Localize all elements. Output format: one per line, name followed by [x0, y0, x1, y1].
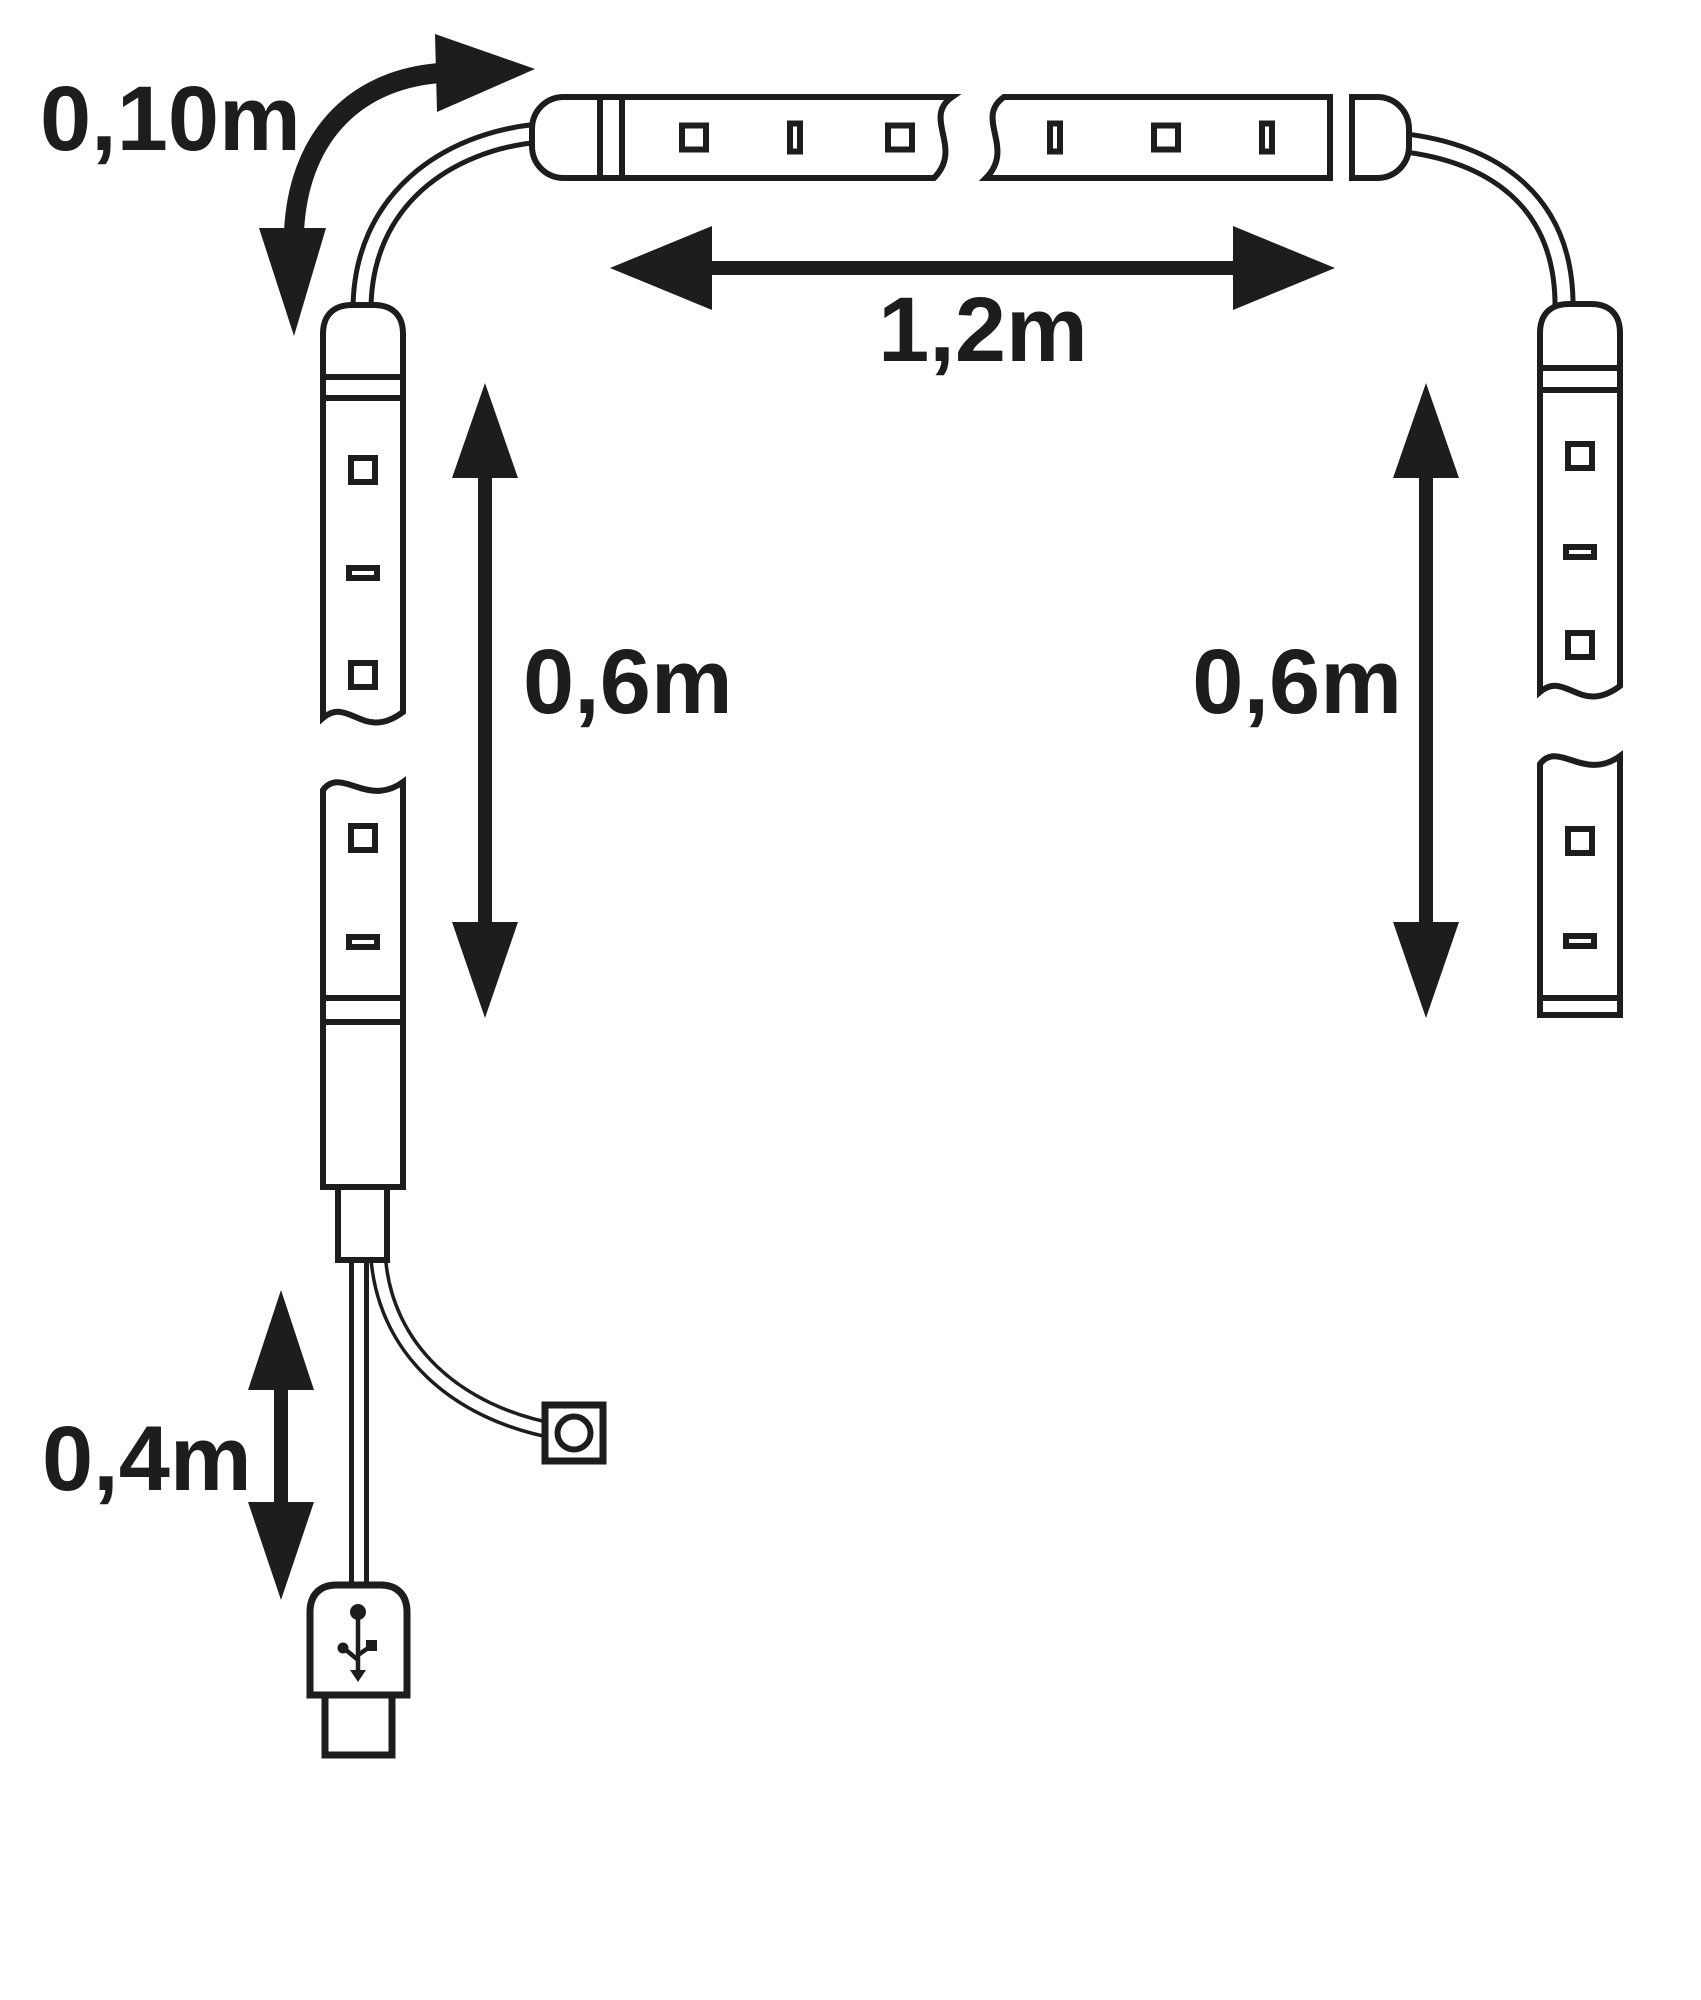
resistor-mark: [1262, 124, 1272, 152]
resistor-mark: [349, 568, 377, 578]
left-connector-cable-core: [362, 133, 540, 310]
resistor-mark: [1050, 124, 1060, 152]
resistor-mark: [1566, 936, 1594, 946]
label-horizontal-strip-length: 1,2m: [878, 279, 1088, 381]
arrow-left-0-6m-head-up: [452, 383, 518, 478]
led-square: [351, 826, 375, 850]
led-square: [1568, 829, 1592, 853]
right-strip-lower-segment: [1540, 756, 1620, 1015]
led-square: [351, 458, 375, 482]
usb-plug-metal-shell: [325, 1695, 392, 1755]
horizontal-led-strip: [532, 97, 1409, 178]
usb-plug: [310, 1585, 407, 1755]
arrow-1-2m-head-left: [610, 226, 712, 310]
resistor-mark: [1566, 547, 1594, 557]
led-square: [1568, 633, 1592, 657]
inline-switch: [545, 1405, 603, 1461]
left-strip-upper-segment: [323, 305, 403, 723]
switch-cable-core: [378, 1255, 560, 1432]
led-square: [888, 126, 912, 150]
horizontal-strip-right-cap: [1352, 97, 1409, 178]
strip-end-plug: [338, 1187, 387, 1260]
led-square: [351, 663, 375, 687]
led-square: [1568, 444, 1592, 468]
usb-icon-square-tip: [366, 1640, 377, 1651]
arrow-1-2m-head-right: [1233, 226, 1335, 310]
led-square: [682, 126, 706, 150]
led-strip-dimension-diagram: 0,10m 1,2m 0,6m 0,6m 0,4m: [0, 0, 1701, 2000]
right-led-strip: [1540, 304, 1620, 1015]
arrow-right-0-6m-head-down: [1393, 922, 1459, 1018]
curved-arrow-head-right: [435, 34, 535, 112]
diagram-svg: 0,10m 1,2m 0,6m 0,6m 0,4m: [0, 0, 1701, 2000]
label-usb-cable-length: 0,4m: [42, 1408, 252, 1510]
right-connector-cable-core: [1398, 142, 1564, 310]
label-connector-cable-length: 0,10m: [40, 68, 301, 170]
usb-icon-circle-tip: [338, 1643, 349, 1654]
horizontal-strip-left-cap: [532, 97, 622, 178]
curved-arrow-head-down: [259, 228, 326, 336]
dimension-labels: 0,10m 1,2m 0,6m 0,6m 0,4m: [40, 68, 1402, 1510]
resistor-mark: [349, 937, 377, 947]
label-left-strip-length: 0,6m: [523, 631, 733, 733]
left-led-strip: [323, 305, 403, 1260]
arrow-right-0-6m-head-up: [1393, 383, 1459, 478]
curved-arrow-shaft: [294, 73, 440, 232]
switch-circle-icon: [558, 1417, 591, 1450]
led-square: [1154, 126, 1178, 150]
resistor-mark: [790, 124, 800, 152]
label-right-strip-length: 0,6m: [1192, 631, 1402, 733]
arrow-0-4m-head-down: [248, 1502, 314, 1600]
arrow-0-4m-head-up: [248, 1290, 314, 1390]
arrow-left-0-6m-head-down: [452, 922, 518, 1018]
